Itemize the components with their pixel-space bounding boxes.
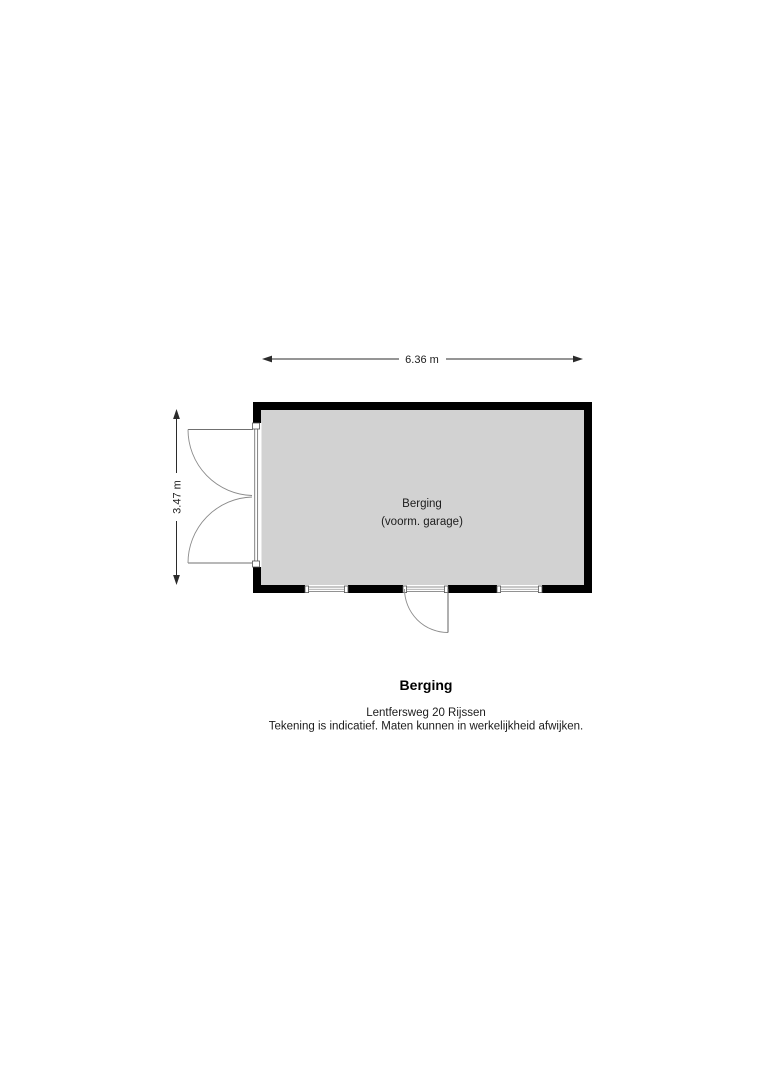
caption-disclaimer: Tekening is indicatief. Maten kunnen in … xyxy=(269,721,584,733)
floorplan-page: 6.36 m 3.47 m xyxy=(0,0,768,1086)
dimension-arrow-right-icon xyxy=(573,356,583,363)
window-jamb-left xyxy=(305,586,309,593)
window-jamb-right xyxy=(344,586,348,593)
door-jamb-top xyxy=(253,423,260,429)
dimension-arrow-down-icon xyxy=(173,575,180,585)
dimension-arrow-up-icon xyxy=(173,409,180,419)
room-sublabel: (voorm. garage) xyxy=(381,516,463,528)
dimension-width: 6.36 m xyxy=(262,354,583,366)
door-jamb-bottom xyxy=(253,561,260,567)
room-label: Berging xyxy=(402,498,442,510)
double-door-opening-left xyxy=(188,423,262,567)
door-swing-arc-top xyxy=(188,430,252,496)
caption-address: Lentfersweg 20 Rijssen xyxy=(366,707,486,719)
opening-cut-left xyxy=(253,423,262,567)
door-swing-arc xyxy=(405,589,449,633)
dimension-arrow-left-icon xyxy=(262,356,272,363)
dimension-width-label: 6.36 m xyxy=(405,354,439,366)
floorplan-drawing: 6.36 m 3.47 m xyxy=(0,0,768,1086)
window-bottom-left xyxy=(305,585,348,593)
caption: Berging Lentfersweg 20 Rijssen Tekening … xyxy=(269,677,584,733)
door-swing-arc-bottom xyxy=(188,497,252,563)
dimension-height-label: 3.47 m xyxy=(172,480,184,514)
window-bottom-right xyxy=(497,585,542,593)
caption-title: Berging xyxy=(400,677,453,693)
window-jamb-right xyxy=(538,586,542,593)
single-door-bottom xyxy=(403,585,448,633)
dimension-height: 3.47 m xyxy=(172,409,184,585)
room-berging: Berging (voorm. garage) xyxy=(188,402,592,633)
window-jamb-left xyxy=(497,586,501,593)
